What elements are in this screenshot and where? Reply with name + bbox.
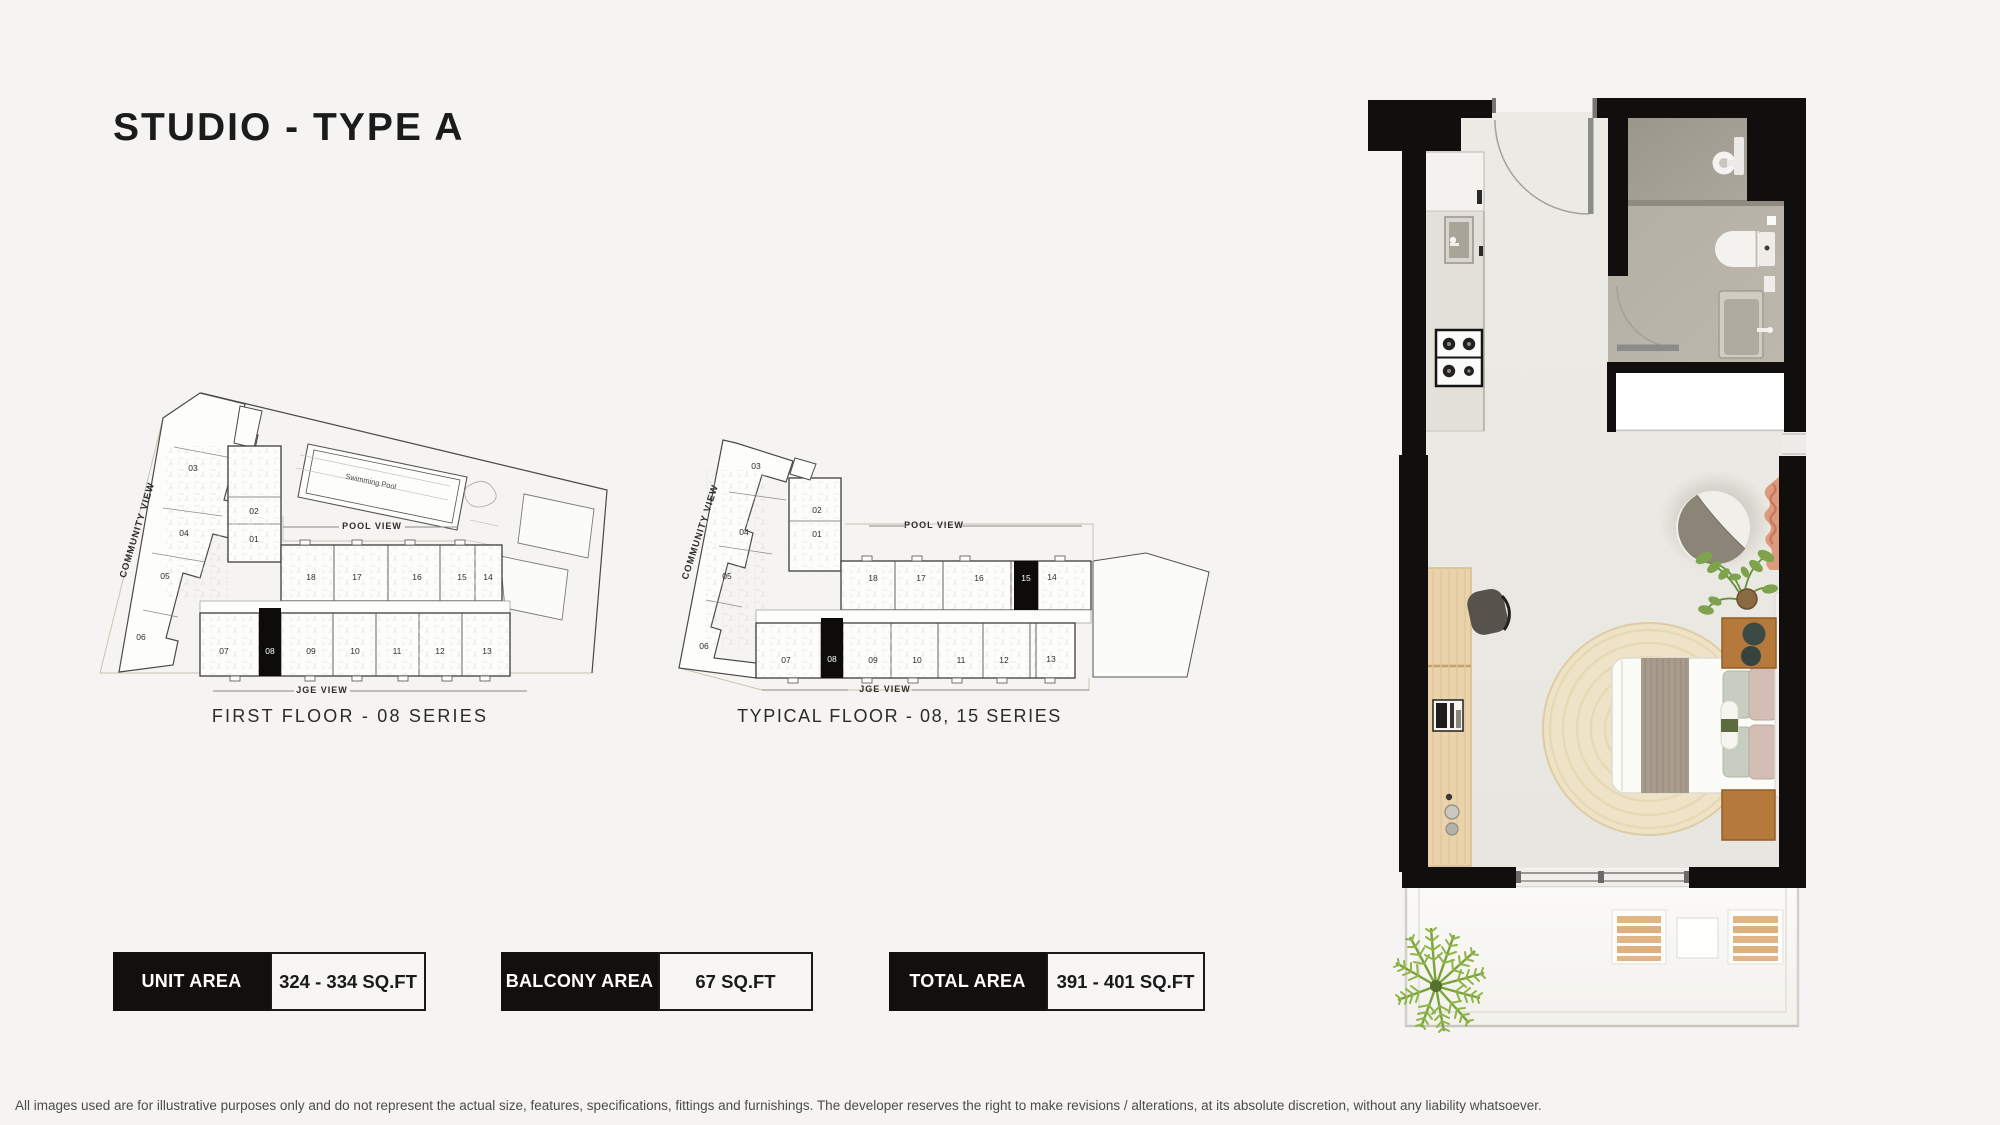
svg-text:01: 01 — [249, 534, 259, 544]
svg-text:03: 03 — [751, 461, 761, 471]
svg-text:JGE VIEW: JGE VIEW — [296, 685, 348, 695]
svg-text:03: 03 — [188, 463, 198, 473]
svg-text:07: 07 — [219, 646, 229, 656]
svg-text:15: 15 — [457, 572, 467, 582]
svg-text:12: 12 — [999, 655, 1009, 665]
svg-text:02: 02 — [249, 506, 259, 516]
svg-text:14: 14 — [1047, 572, 1057, 582]
svg-text:04: 04 — [179, 528, 189, 538]
svg-text:JGE VIEW: JGE VIEW — [859, 684, 911, 694]
svg-text:08: 08 — [265, 646, 275, 656]
svg-text:11: 11 — [393, 646, 402, 656]
svg-text:01: 01 — [812, 529, 822, 539]
svg-text:11: 11 — [957, 655, 966, 665]
svg-text:POOL VIEW: POOL VIEW — [904, 520, 964, 530]
svg-text:06: 06 — [699, 641, 709, 651]
svg-text:05: 05 — [722, 571, 732, 581]
svg-text:15: 15 — [1021, 573, 1031, 583]
svg-text:09: 09 — [868, 655, 878, 665]
svg-text:08: 08 — [827, 654, 837, 664]
svg-text:16: 16 — [412, 572, 422, 582]
svg-text:13: 13 — [1046, 654, 1056, 664]
svg-text:17: 17 — [916, 573, 926, 583]
svg-text:POOL VIEW: POOL VIEW — [342, 521, 402, 531]
svg-text:05: 05 — [160, 571, 170, 581]
svg-text:06: 06 — [136, 632, 146, 642]
svg-text:16: 16 — [974, 573, 984, 583]
svg-text:07: 07 — [781, 655, 791, 665]
svg-text:04: 04 — [739, 527, 749, 537]
svg-text:18: 18 — [306, 572, 316, 582]
svg-text:18: 18 — [868, 573, 878, 583]
svg-text:12: 12 — [435, 646, 445, 656]
svg-text:17: 17 — [352, 572, 362, 582]
svg-text:14: 14 — [483, 572, 493, 582]
svg-text:02: 02 — [812, 505, 822, 515]
svg-text:09: 09 — [306, 646, 316, 656]
svg-text:10: 10 — [350, 646, 360, 656]
svg-text:10: 10 — [912, 655, 922, 665]
svg-text:13: 13 — [482, 646, 492, 656]
